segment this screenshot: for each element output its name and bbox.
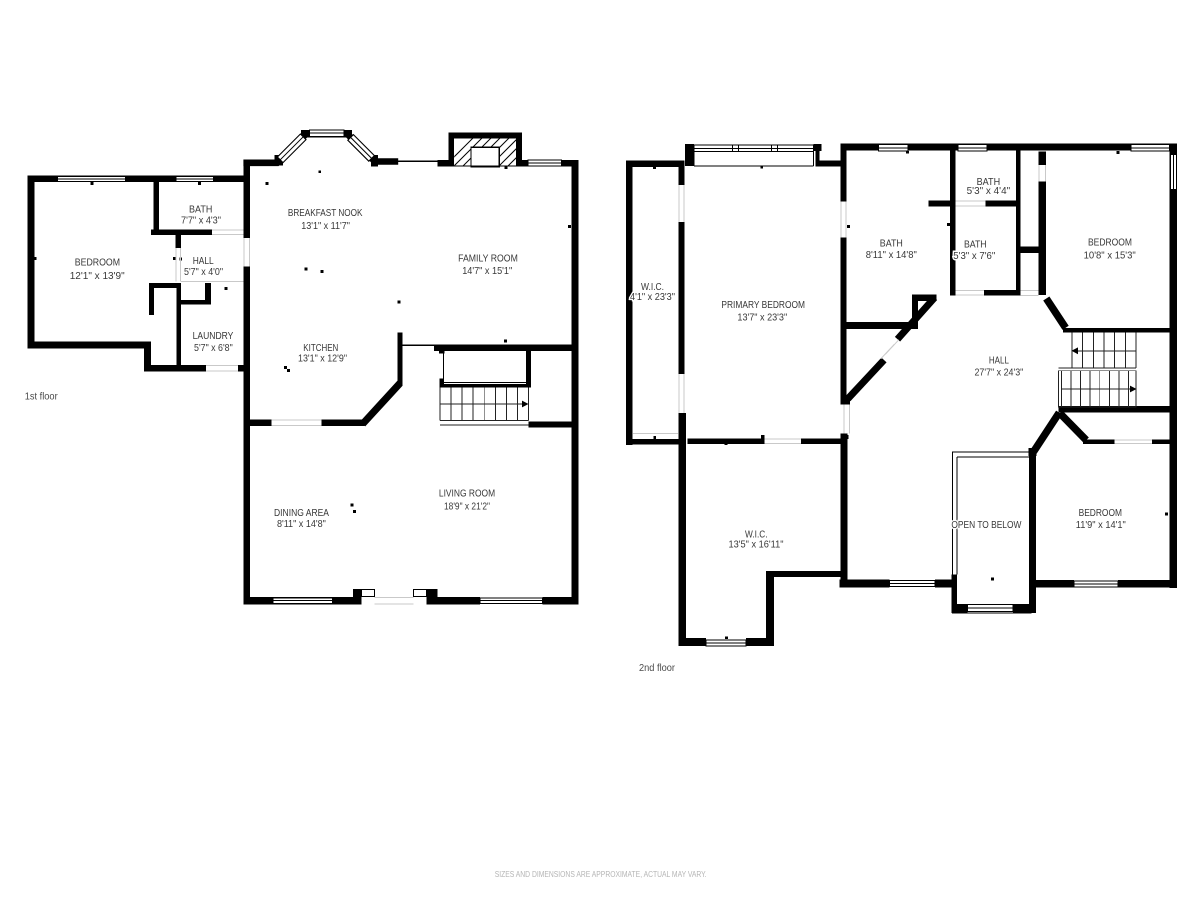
svg-text:4'1" x 23'3": 4'1" x 23'3"	[630, 291, 675, 303]
svg-text:LIVING ROOM: LIVING ROOM	[439, 488, 495, 500]
svg-text:8'11" x 14'8": 8'11" x 14'8"	[866, 249, 917, 261]
svg-text:5'7" x 4'0": 5'7" x 4'0"	[184, 266, 223, 278]
svg-text:BATH: BATH	[880, 237, 903, 249]
svg-text:12'1" x 13'9": 12'1" x 13'9"	[70, 270, 125, 282]
svg-text:FAMILY ROOM: FAMILY ROOM	[458, 252, 518, 264]
svg-text:BEDROOM: BEDROOM	[75, 257, 120, 269]
svg-text:8'11" x 14'8": 8'11" x 14'8"	[277, 518, 326, 530]
svg-text:2nd floor: 2nd floor	[639, 662, 675, 674]
svg-text:OPEN TO BELOW: OPEN TO BELOW	[951, 519, 1021, 531]
svg-text:13'7" x 23'3": 13'7" x 23'3"	[737, 311, 787, 323]
svg-text:BATH: BATH	[964, 238, 987, 250]
svg-text:BREAKFAST NOOK: BREAKFAST NOOK	[288, 207, 363, 219]
svg-text:BEDROOM: BEDROOM	[1079, 507, 1122, 519]
svg-text:HALL: HALL	[989, 354, 1009, 366]
svg-text:7'7" x 4'3": 7'7" x 4'3"	[181, 214, 221, 226]
svg-text:BEDROOM: BEDROOM	[1088, 237, 1132, 249]
svg-text:10'8" x 15'3": 10'8" x 15'3"	[1084, 249, 1136, 261]
svg-text:13'1" x 12'9": 13'1" x 12'9"	[298, 353, 347, 365]
svg-text:13'5" x 16'11": 13'5" x 16'11"	[729, 539, 784, 551]
svg-text:5'3" x 7'6": 5'3" x 7'6"	[953, 250, 995, 262]
svg-text:14'7" x 15'1": 14'7" x 15'1"	[462, 265, 512, 277]
svg-text:5'7" x 6'8": 5'7" x 6'8"	[194, 342, 233, 354]
svg-text:PRIMARY BEDROOM: PRIMARY BEDROOM	[721, 299, 805, 311]
svg-text:1st floor: 1st floor	[25, 391, 58, 403]
svg-text:18'9" x 21'2": 18'9" x 21'2"	[444, 501, 490, 513]
svg-text:SIZES AND DIMENSIONS ARE APPRO: SIZES AND DIMENSIONS ARE APPROXIMATE, AC…	[495, 870, 707, 879]
svg-text:27'7" x 24'3": 27'7" x 24'3"	[974, 367, 1023, 379]
svg-text:LAUNDRY: LAUNDRY	[193, 330, 234, 342]
svg-text:5'3" x 4'4": 5'3" x 4'4"	[967, 185, 1011, 197]
svg-text:13'1" x 11'7": 13'1" x 11'7"	[301, 220, 350, 232]
svg-text:11'9" x 14'1": 11'9" x 14'1"	[1076, 519, 1126, 531]
